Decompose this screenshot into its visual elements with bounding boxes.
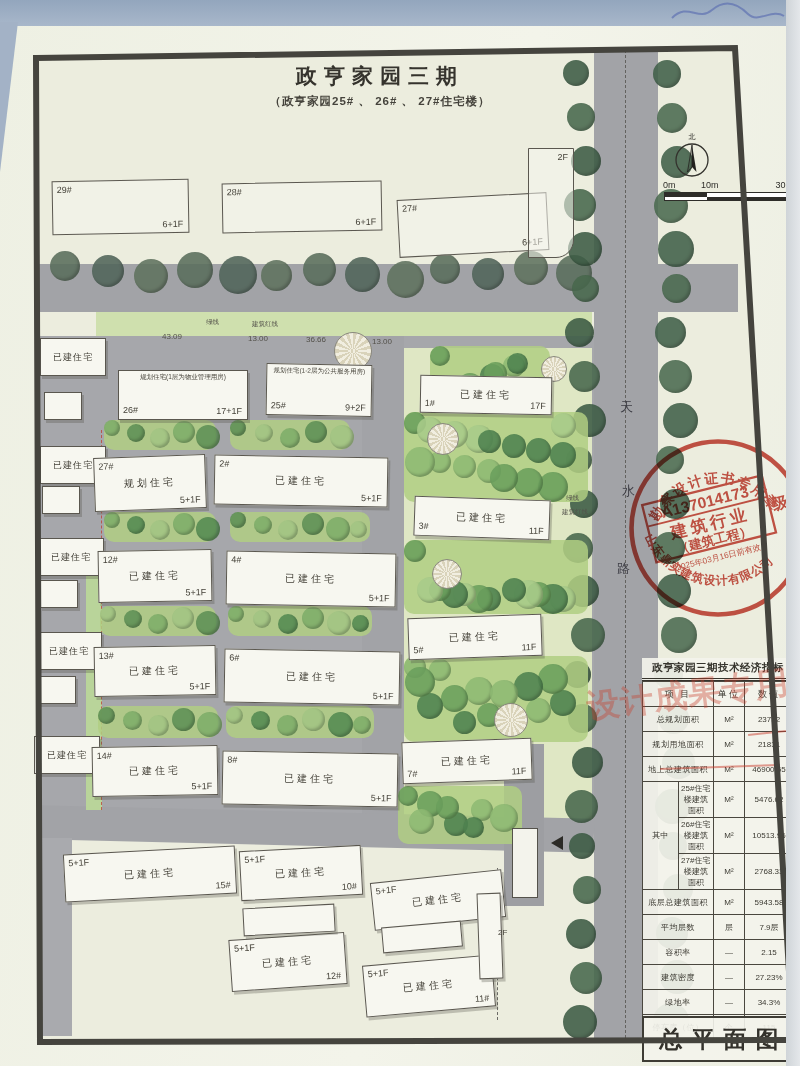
tree-icon <box>404 540 426 562</box>
tree-icon <box>148 614 168 634</box>
courtyard-strip <box>230 512 370 542</box>
tree-icon <box>507 353 528 374</box>
building-floors: 17F <box>530 402 546 411</box>
existing-building-west: 已建住宅 <box>40 338 106 376</box>
green-line-label: 绿线 <box>566 494 579 503</box>
tree-icon <box>278 520 298 540</box>
tree-icon <box>196 611 220 635</box>
building-1: 1# 已建住宅 17F <box>420 375 553 415</box>
table-row: 规划用地面积M²21831 <box>643 732 794 757</box>
building-15: 5+1F 已建住宅 15# <box>63 846 237 903</box>
design-certificate-stamp: 勘察设计证书专用章 山东鼎实建筑设计有限公司 A137014173 建筑行业 （… <box>626 436 800 620</box>
building-floors: 5+1F <box>361 494 382 503</box>
building-status: 已建住宅 <box>284 774 336 785</box>
building-floors: 11F <box>529 527 544 537</box>
tree-icon <box>150 520 170 540</box>
dimension-label: 36.66 <box>306 335 326 344</box>
building-status: 已建住宅 <box>275 867 327 880</box>
tree-icon <box>465 677 493 705</box>
tree-icon <box>659 360 692 393</box>
tree-icon <box>472 258 504 290</box>
building-number: 10# <box>342 882 357 892</box>
existing-building-west: 已建住宅 <box>36 632 102 670</box>
tree-icon <box>572 275 599 302</box>
tree-icon <box>490 464 518 492</box>
building-status: 已建住宅 <box>129 766 181 777</box>
building-floors: 5+1F <box>367 968 388 979</box>
building-floors: 5+1F <box>369 594 390 603</box>
street-tree-row <box>50 250 590 296</box>
building-number: 11# <box>475 994 490 1004</box>
tree-icon <box>104 512 120 528</box>
building-number: 13# <box>99 652 114 661</box>
tree-icon <box>566 919 596 949</box>
building-status: 已建住宅 <box>460 390 512 401</box>
tree-icon <box>565 790 598 823</box>
tree-icon <box>104 420 120 436</box>
tree-icon <box>502 578 526 602</box>
building-number: 5# <box>413 646 423 655</box>
tree-icon <box>305 421 327 443</box>
building-12: 12# 已建住宅 5+1F <box>98 549 213 603</box>
tree-icon <box>661 617 697 653</box>
building-status: 已建住宅 <box>449 631 501 643</box>
building-number: 27# <box>402 204 417 214</box>
building-status: 已建住宅 <box>47 751 87 760</box>
building-status: 已建住宅 <box>124 868 176 881</box>
east-garden <box>404 412 588 502</box>
tree-icon <box>453 711 476 734</box>
building-14: 14# 已建住宅 5+1F <box>92 745 219 797</box>
tree-icon <box>173 513 195 535</box>
tree-icon <box>569 361 600 392</box>
tree-icon <box>658 231 694 267</box>
tree-icon <box>571 618 605 652</box>
svg-text:北: 北 <box>689 133 696 141</box>
building-number: 28# <box>227 188 242 197</box>
courtyard-strip <box>104 420 216 450</box>
building-status: 已建住宅 <box>129 666 181 677</box>
building-number: 4# <box>231 556 241 565</box>
courtyard-strip <box>226 706 374 738</box>
connector-slab <box>40 580 78 608</box>
courtyard-strip <box>98 706 218 738</box>
parking-slab <box>242 904 335 937</box>
building-8: 8# 已建住宅 5+1F <box>222 750 399 807</box>
page-title: 政亨家园三期 <box>230 62 530 90</box>
tree-icon <box>430 346 450 366</box>
table-row: 底层总建筑面积M²5943.58 <box>643 890 794 915</box>
building-number: 12# <box>103 556 118 565</box>
tree-icon <box>353 716 371 734</box>
tree-icon <box>514 468 543 497</box>
building-number: 14# <box>97 752 112 761</box>
plaza-circle <box>494 703 528 737</box>
building-floors: 5+1F <box>375 885 397 896</box>
tree-icon <box>572 747 603 778</box>
building-number: 25# <box>271 401 286 410</box>
building-number: 27# <box>98 462 113 472</box>
tree-icon <box>657 103 687 133</box>
green-line-label: 绿线 <box>206 318 219 327</box>
tree-icon <box>255 424 273 442</box>
building-28-outline: 28# 6+1F <box>222 181 383 234</box>
drawing-title: 总平面图 <box>651 1024 788 1055</box>
tree-icon <box>277 715 298 736</box>
tree-icon <box>569 833 595 859</box>
tree-icon <box>134 259 168 293</box>
tree-icon <box>196 425 220 449</box>
tree-icon <box>127 424 145 442</box>
building-floors: 6+1F <box>162 220 183 229</box>
east-garden <box>398 786 522 844</box>
tree-icon <box>441 685 468 712</box>
building-status: 已建住宅 <box>51 553 91 562</box>
tree-icon <box>478 430 501 453</box>
tree-icon <box>551 413 576 438</box>
building-floors: 5+1F <box>373 692 394 701</box>
tree-icon <box>662 274 691 303</box>
table-row: 绿地率—34.3% <box>643 990 794 1015</box>
building-27-outline: 27# 6+1F <box>397 192 550 258</box>
table-row: 建筑密度—27.23% <box>643 965 794 990</box>
dimension-label: 13.00 <box>372 337 392 346</box>
tree-icon <box>280 428 300 448</box>
building-floors: 5+1F <box>185 588 206 597</box>
entrance-arrow-icon <box>544 836 563 850</box>
tree-icon <box>345 257 380 292</box>
tree-icon <box>398 786 418 806</box>
adjacent-page-edge <box>786 0 800 1066</box>
tree-icon <box>550 442 576 468</box>
building-4: 4# 已建住宅 5+1F <box>226 551 397 608</box>
tree-icon <box>430 254 460 284</box>
tree-icon <box>226 707 243 724</box>
tree-icon <box>254 516 272 534</box>
tree-icon <box>100 606 116 622</box>
tree-icon <box>228 606 244 622</box>
tree-icon <box>148 715 169 736</box>
tree-icon <box>278 614 298 634</box>
building-status: 已建住宅 <box>285 574 337 585</box>
tree-icon <box>463 817 484 838</box>
tree-icon <box>573 876 601 904</box>
building-number: 7# <box>407 770 417 779</box>
building-status: 已建住宅 <box>129 571 181 582</box>
table-row: 容积率—2.15 <box>643 940 794 965</box>
tree-icon <box>219 256 257 294</box>
building-note: 规划住宅(1-2层为公共服务用房) <box>269 366 369 377</box>
building-floors: 11F <box>511 767 526 777</box>
tree-icon <box>663 403 698 438</box>
tree-icon <box>172 607 194 629</box>
building-5: 5# 已建住宅 11F <box>407 614 542 661</box>
building-floors: 11F <box>521 643 536 653</box>
tree-icon <box>571 146 601 176</box>
building-25: 规划住宅(1-2层为公共服务用房) 25# 9+2F <box>266 363 373 417</box>
building-status: 已建住宅 <box>456 512 508 524</box>
entrance-gate <box>512 828 538 898</box>
tree-icon <box>563 60 589 86</box>
tree-icon <box>387 261 424 298</box>
scale-label: 10m <box>701 180 719 190</box>
building-floors: 2F <box>557 153 568 162</box>
building-2: 2# 已建住宅 5+1F <box>214 454 389 507</box>
building-12-south: 5+1F 已建住宅 12# <box>228 932 347 992</box>
tree-icon <box>502 434 526 458</box>
tree-icon <box>173 421 195 443</box>
road-name-char: 天 <box>620 398 633 416</box>
building-29-outline: 29# 6+1F <box>52 179 190 235</box>
building-floors: 17+1F <box>216 407 242 416</box>
building-status: 已建住宅 <box>286 672 338 683</box>
building-status: 已建住宅 <box>53 353 93 362</box>
tree-icon <box>50 251 80 281</box>
building-floors: 5+1F <box>189 682 210 691</box>
tree-icon <box>409 809 434 834</box>
building-number: 29# <box>57 186 72 195</box>
table-row: 平均层数层7.9层 <box>643 915 794 940</box>
building-number: 8# <box>227 756 237 765</box>
pen-scribble <box>668 0 788 26</box>
tree-icon <box>514 672 543 701</box>
table-row: 其中 25#住宅楼建筑面积M²5476.62 <box>643 782 794 818</box>
courtyard-strip <box>228 606 372 636</box>
tree-icon <box>302 607 324 629</box>
building-floors: 5+1F <box>180 495 201 505</box>
building-status: 规划住宅 <box>124 477 176 489</box>
tree-icon <box>328 712 353 737</box>
tree-icon <box>261 260 292 291</box>
tree-icon <box>327 611 351 635</box>
tree-icon <box>253 610 271 628</box>
building-26: 规划住宅(1层为物业管理用房) 26# 17+1F <box>118 370 248 420</box>
tree-icon <box>196 517 220 541</box>
building-number: 6# <box>229 654 239 663</box>
tree-icon <box>251 711 270 730</box>
building-number: 3# <box>419 522 429 531</box>
building-10: 5+1F 已建住宅 10# <box>239 845 363 901</box>
existing-building-west: 已建住宅 <box>34 736 100 774</box>
red-line-label: 建筑红线 <box>252 320 278 329</box>
plaza-circle <box>432 559 462 589</box>
tree-icon <box>405 667 435 697</box>
tree-icon <box>92 255 124 287</box>
among-label: 其中 <box>643 782 679 890</box>
building-floors: 5+1F <box>68 858 89 868</box>
building-6: 6# 已建住宅 5+1F <box>224 648 401 705</box>
tree-icon <box>570 962 602 994</box>
plaza-circle <box>427 423 459 455</box>
connector-slab <box>38 676 76 704</box>
tree-icon <box>303 253 336 286</box>
building-number: 15# <box>215 881 230 891</box>
building-number: 2# <box>219 460 229 469</box>
building-number: 26# <box>123 406 138 415</box>
building-27: 27# 规划住宅 5+1F <box>93 454 207 512</box>
site-plan-photo: 政亨家园三期 （政亨家园25# 、 26# 、 27#住宅楼） 29# 6+1F… <box>0 0 800 1066</box>
tree-icon <box>563 1005 597 1039</box>
building-floors: 5+1F <box>234 943 255 953</box>
annex-floors-label: 2F <box>498 928 507 937</box>
building-floors: 5+1F <box>191 782 212 791</box>
dimension-label: 13.00 <box>248 334 268 343</box>
building-status: 已建住宅 <box>412 892 465 907</box>
tree-icon <box>197 712 222 737</box>
tree-icon <box>230 512 246 528</box>
courtyard-strip <box>230 420 350 450</box>
tree-icon <box>124 610 142 628</box>
tree-icon <box>350 521 367 538</box>
building-note: 规划住宅(1层为物业管理用房) <box>121 373 245 382</box>
north-compass-icon: 北 <box>672 130 712 180</box>
building-floors: 6+1F <box>355 218 376 227</box>
courtyard-strip <box>104 512 216 542</box>
tree-icon <box>127 516 145 534</box>
building-number: 1# <box>425 399 435 408</box>
scale-bar: 0m 10m 30m <box>664 190 792 201</box>
building-3: 3# 已建住宅 11F <box>413 496 550 541</box>
building-status: 已建住宅 <box>441 755 493 767</box>
tree-icon <box>123 711 142 730</box>
building-floors: 5+1F <box>244 855 265 865</box>
existing-building-west: 已建住宅 <box>38 538 104 576</box>
tree-icon <box>453 455 476 478</box>
building-status: 已建住宅 <box>53 461 93 470</box>
tree-icon <box>538 472 568 502</box>
tree-icon <box>98 707 115 724</box>
building-status: 已建住宅 <box>275 476 327 487</box>
tree-icon <box>177 252 213 288</box>
tree-icon <box>565 318 594 347</box>
tree-icon <box>326 517 350 541</box>
tree-icon <box>150 428 170 448</box>
scale-label: 0m <box>663 180 676 190</box>
tree-icon <box>655 317 686 348</box>
connector-slab <box>44 392 82 420</box>
tree-icon <box>172 708 195 731</box>
building-status: 已建住宅 <box>403 979 456 993</box>
building-floors: 9+2F <box>345 403 366 412</box>
tree-icon <box>352 615 369 632</box>
tree-icon <box>405 447 435 477</box>
building-13: 13# 已建住宅 5+1F <box>94 645 217 697</box>
courtyard-strip <box>100 606 216 636</box>
building-number: 12# <box>326 971 342 981</box>
drawing-title-box: 总平面图 <box>642 1016 796 1062</box>
red-line-label: 建筑红线 <box>562 508 588 517</box>
connector-slab <box>42 486 80 514</box>
tree-icon <box>230 420 246 436</box>
building-2f-outline: 2F <box>528 148 574 258</box>
dimension-label: 43.09 <box>162 332 182 341</box>
building-7: 7# 已建住宅 11F <box>401 738 532 785</box>
tree-icon <box>302 513 324 535</box>
building-status: 已建住宅 <box>262 955 315 969</box>
tree-icon <box>653 60 681 88</box>
tree-icon <box>330 425 354 449</box>
tree-icon <box>436 796 459 819</box>
building-status: 已建住宅 <box>49 647 89 656</box>
tree-icon <box>526 438 551 463</box>
building-floors: 5+1F <box>371 794 392 803</box>
page-subtitle: （政亨家园25# 、 26# 、 27#住宅楼） <box>190 94 570 109</box>
tree-icon <box>302 708 325 731</box>
tree-icon <box>567 103 595 131</box>
tree-icon <box>526 698 551 723</box>
